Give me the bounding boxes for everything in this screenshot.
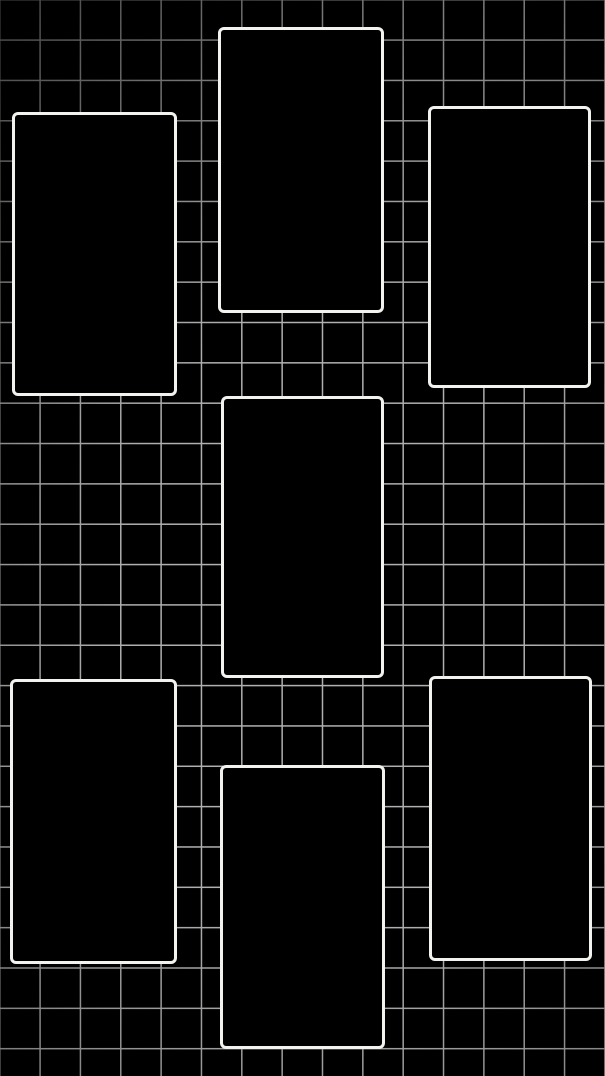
photo-frame-middle-center[interactable] <box>221 396 384 678</box>
photo-frame-top-center[interactable] <box>218 27 384 313</box>
grid-wallpaper <box>0 0 605 1076</box>
photo-frame-bottom-center[interactable] <box>220 765 385 1049</box>
photo-frame-bottom-left[interactable] <box>10 679 177 964</box>
photo-frame-top-right[interactable] <box>428 106 591 388</box>
photo-frame-top-left[interactable] <box>12 112 177 396</box>
photo-frame-bottom-right[interactable] <box>429 676 592 961</box>
